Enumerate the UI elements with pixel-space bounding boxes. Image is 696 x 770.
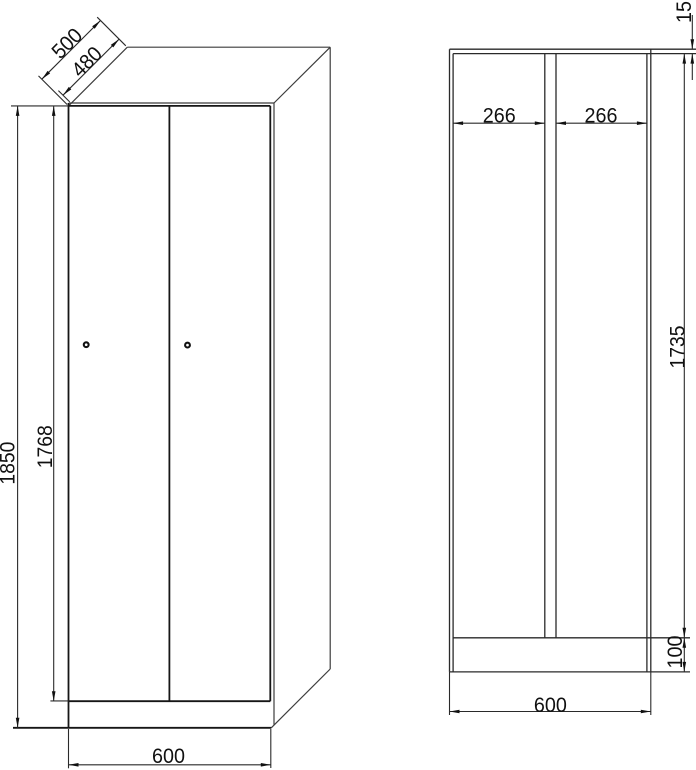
svg-text:600: 600 <box>534 694 567 717</box>
svg-text:15: 15 <box>673 1 696 23</box>
svg-text:266: 266 <box>483 105 516 128</box>
svg-text:1850: 1850 <box>0 442 19 485</box>
svg-text:1768: 1768 <box>34 425 57 468</box>
svg-text:600: 600 <box>152 745 185 768</box>
svg-text:266: 266 <box>585 105 618 128</box>
svg-text:1735: 1735 <box>667 326 690 369</box>
svg-text:100: 100 <box>664 636 687 669</box>
